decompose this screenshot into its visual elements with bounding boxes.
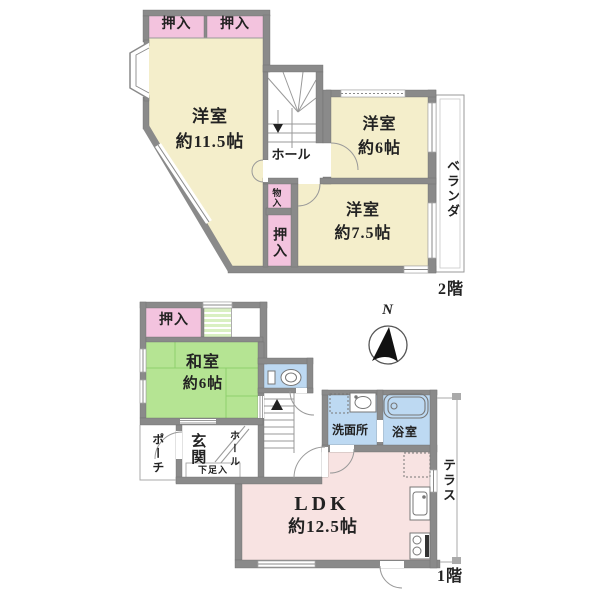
room-115-size: 約11.5帖 (147, 132, 273, 152)
stairs-2f (268, 72, 316, 148)
vanity-icon (350, 393, 376, 412)
washitsu-name: 和室 (150, 354, 256, 372)
ldk-name: LDK (252, 493, 392, 516)
storage-2f-label: 物入 (271, 186, 281, 210)
washroom-label: 洗面所 (320, 424, 380, 438)
compass-north-label: N (378, 302, 398, 319)
closet-2f-b-label: 押入 (207, 17, 263, 33)
hall-2f-label: ホール (262, 148, 320, 163)
room-6-size: 約6帖 (331, 140, 428, 158)
room-115-name: 洋室 (150, 107, 270, 127)
stairs-down-arrow (273, 124, 283, 133)
floor1-label: 1階 (428, 568, 472, 586)
closet-2f-side-label: 押入 (270, 220, 286, 266)
closet-1f-label: 押入 (146, 313, 202, 329)
toilet-icon (268, 370, 301, 386)
terrace-label: テラス (440, 451, 455, 509)
compass (369, 326, 407, 364)
ldk-size: 約12.5帖 (248, 517, 398, 537)
bathroom-label: 浴室 (378, 426, 432, 440)
veranda-label: ベランダ (444, 143, 459, 235)
closet-2f-a-label: 押入 (149, 17, 204, 33)
hall-1f-label: ホール (227, 428, 239, 470)
room-6-name: 洋室 (331, 116, 428, 134)
room-75-size: 約7.5帖 (298, 225, 428, 243)
floor2-label: 2階 (430, 281, 472, 299)
entrance-label: 玄関 (188, 429, 205, 469)
stairs-1f (263, 393, 294, 453)
floor-plan: 押入 押入 洋室 約11.5帖 洋室 約6帖 洋室 約7.5帖 ホール 物入 押… (0, 0, 600, 600)
stairs-up-arrow (271, 399, 283, 410)
washitsu-size: 約6帖 (146, 376, 260, 393)
compass-needle (372, 327, 398, 362)
room-western-6 (331, 97, 428, 178)
porch-label: ポーチ (150, 429, 164, 479)
room-75-name: 洋室 (300, 202, 426, 220)
